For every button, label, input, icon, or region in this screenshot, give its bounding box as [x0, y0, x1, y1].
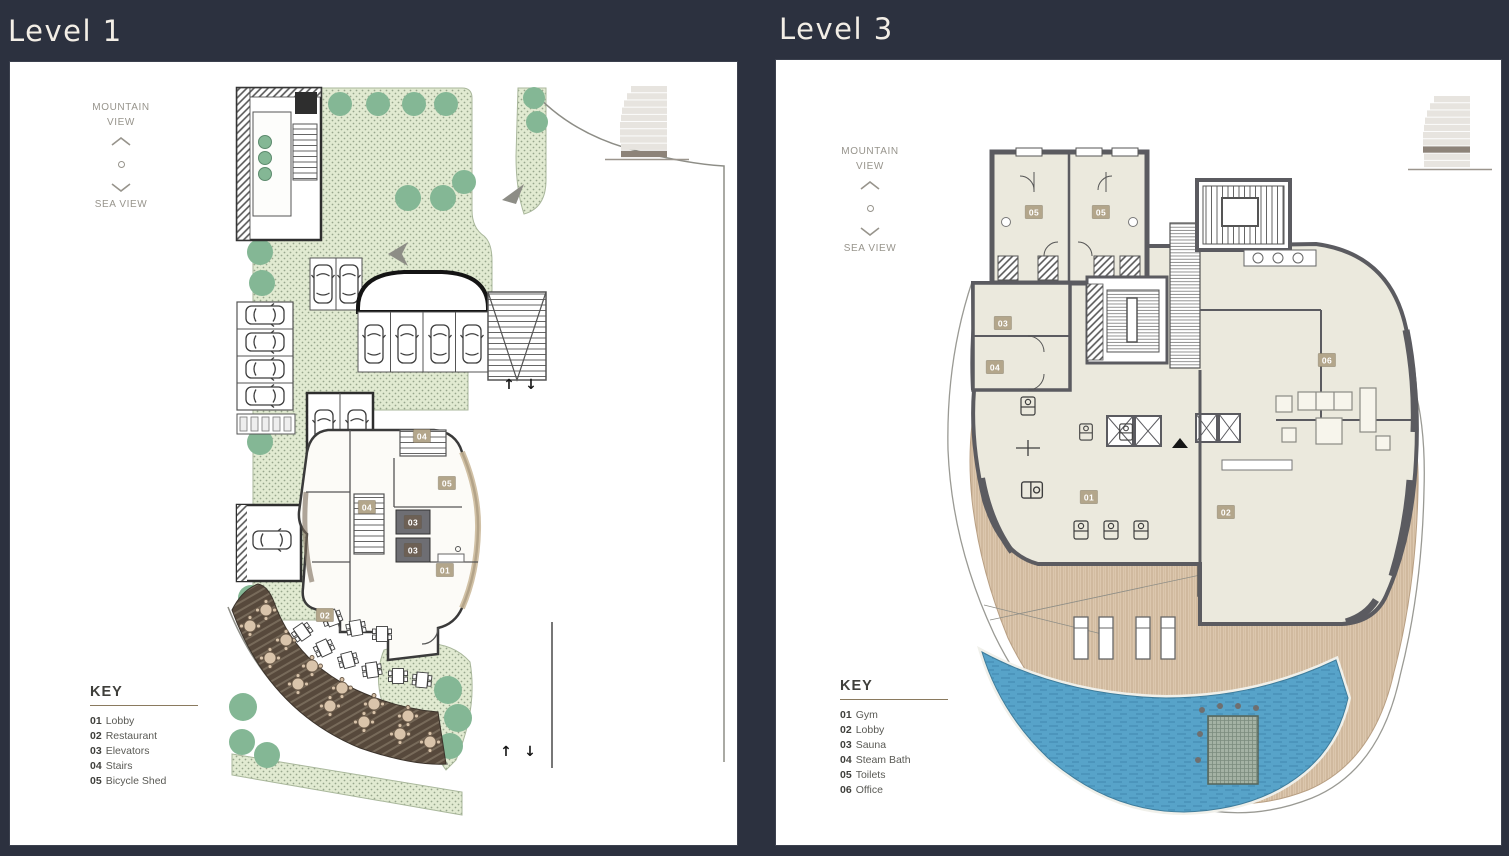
sauna-steam-block — [973, 283, 1070, 390]
parking-stalls — [237, 302, 293, 410]
key-item: 02Lobby — [840, 723, 948, 738]
room-number-badge: 01 — [1080, 491, 1097, 504]
floor-slab — [1430, 103, 1470, 109]
key-item: 03Sauna — [840, 738, 948, 753]
stair-direction-arrow: ↑ — [503, 377, 515, 393]
room-number-badge: 02 — [316, 609, 333, 622]
parking-stalls — [310, 258, 362, 310]
key-legend: KEY 01Lobby02Restaurant03Elevators04Stai… — [90, 684, 198, 789]
reception-desk — [1222, 460, 1292, 470]
room-number-badge: 03 — [404, 516, 421, 529]
service-building — [237, 88, 321, 240]
room-number-badge: 05 — [438, 477, 455, 490]
pool-platform — [1208, 716, 1258, 784]
building-elevation-icon — [605, 86, 689, 164]
key-item-list: 01Gym02Lobby03Sauna04Steam Bath05Toilets… — [840, 708, 948, 798]
ramp-stairs — [488, 292, 546, 380]
stairwell — [1197, 180, 1290, 250]
floor-slab — [1425, 118, 1470, 124]
key-item: 06Office — [840, 783, 948, 798]
key-heading: KEY — [90, 684, 198, 706]
panel-level-3: MOUNTAIN VIEW SEA VIEW KEY 01Gym02Lobby0… — [776, 60, 1501, 845]
building-elevation-icon — [1408, 96, 1492, 174]
key-item: 05Bicycle Shed — [90, 774, 198, 789]
highlighted-floor-slab — [621, 151, 667, 157]
stair-core — [1087, 277, 1167, 363]
floor-slab — [621, 144, 667, 150]
room-number-badge: 06 — [1318, 354, 1335, 367]
compass-sea-label: SEA VIEW — [78, 197, 164, 212]
floor-slab — [1424, 161, 1470, 167]
room-number-badge: 05 — [1092, 206, 1109, 219]
key-item: 04Stairs — [90, 759, 198, 774]
floor-slab — [1423, 139, 1470, 145]
compass-mountain-label: MOUNTAIN — [78, 100, 164, 115]
floor-slab — [1427, 110, 1470, 116]
compass-mountain-label: MOUNTAIN — [827, 144, 913, 159]
floor-slab — [620, 122, 667, 128]
key-item: 01Lobby — [90, 714, 198, 729]
key-item: 04Steam Bath — [840, 753, 948, 768]
key-item: 03Elevators — [90, 744, 198, 759]
room-number-badge: 03 — [994, 317, 1011, 330]
floor-slab — [1423, 132, 1470, 138]
toilets-block — [992, 148, 1147, 283]
key-item: 02Restaurant — [90, 729, 198, 744]
room-number-badge: 05 — [1025, 206, 1042, 219]
floor-slab — [620, 129, 667, 135]
chevron-up-icon — [859, 181, 881, 190]
floor-slab — [624, 100, 667, 106]
floor-slab — [620, 136, 667, 142]
room-number-badge: 02 — [1217, 506, 1234, 519]
compass: MOUNTAIN VIEW SEA VIEW — [78, 100, 164, 212]
key-item: 01Gym — [840, 708, 948, 723]
stair-direction-arrow: ↓ — [524, 744, 536, 760]
floor-plan-brochure: { "colors":{ "background":"#2c313f","pan… — [0, 0, 1509, 856]
dot-icon — [867, 205, 874, 212]
floor-slab — [622, 108, 667, 114]
highlighted-floor-slab — [1423, 146, 1470, 152]
floor-slab — [1424, 125, 1470, 131]
key-item-list: 01Lobby02Restaurant03Elevators04Stairs05… — [90, 714, 198, 789]
reception-desk — [438, 554, 464, 562]
room-number-badge: 03 — [404, 544, 421, 557]
key-item: 05Toilets — [840, 768, 948, 783]
floor-slab — [627, 93, 667, 99]
compass-mountain-label-2: VIEW — [827, 159, 913, 174]
compass-mountain-label-2: VIEW — [78, 115, 164, 130]
road-curb-line — [530, 88, 724, 762]
stair-direction-arrow: ↑ — [500, 744, 512, 760]
outbuilding — [237, 505, 301, 581]
chevron-down-icon — [859, 227, 881, 236]
floor-slab — [1434, 96, 1470, 102]
floor-slab — [631, 86, 667, 92]
floor-slab — [1424, 154, 1470, 160]
chevron-up-icon — [110, 137, 132, 146]
room-number-badge: 04 — [358, 501, 375, 514]
page-title-level-3: Level 3 — [779, 12, 894, 46]
dot-icon — [118, 161, 125, 168]
key-heading: KEY — [840, 678, 948, 700]
chevron-down-icon — [110, 183, 132, 192]
bike-racks — [237, 414, 295, 434]
room-number-badge: 01 — [436, 564, 453, 577]
covered-parking — [358, 272, 488, 372]
key-legend: KEY 01Gym02Lobby03Sauna04Steam Bath05Toi… — [840, 678, 948, 798]
page-title-level-1: Level 1 — [8, 14, 123, 48]
compass-sea-label: SEA VIEW — [827, 241, 913, 256]
room-number-badge: 04 — [413, 430, 430, 443]
room-number-badge: 04 — [986, 361, 1003, 374]
compass: MOUNTAIN VIEW SEA VIEW — [827, 144, 913, 256]
floor-slab — [621, 115, 667, 121]
stair-direction-arrow: ↓ — [525, 377, 537, 393]
panel-level-1: MOUNTAIN VIEW SEA VIEW KEY 01Lobby02Rest… — [10, 62, 737, 845]
stairs — [293, 124, 317, 180]
